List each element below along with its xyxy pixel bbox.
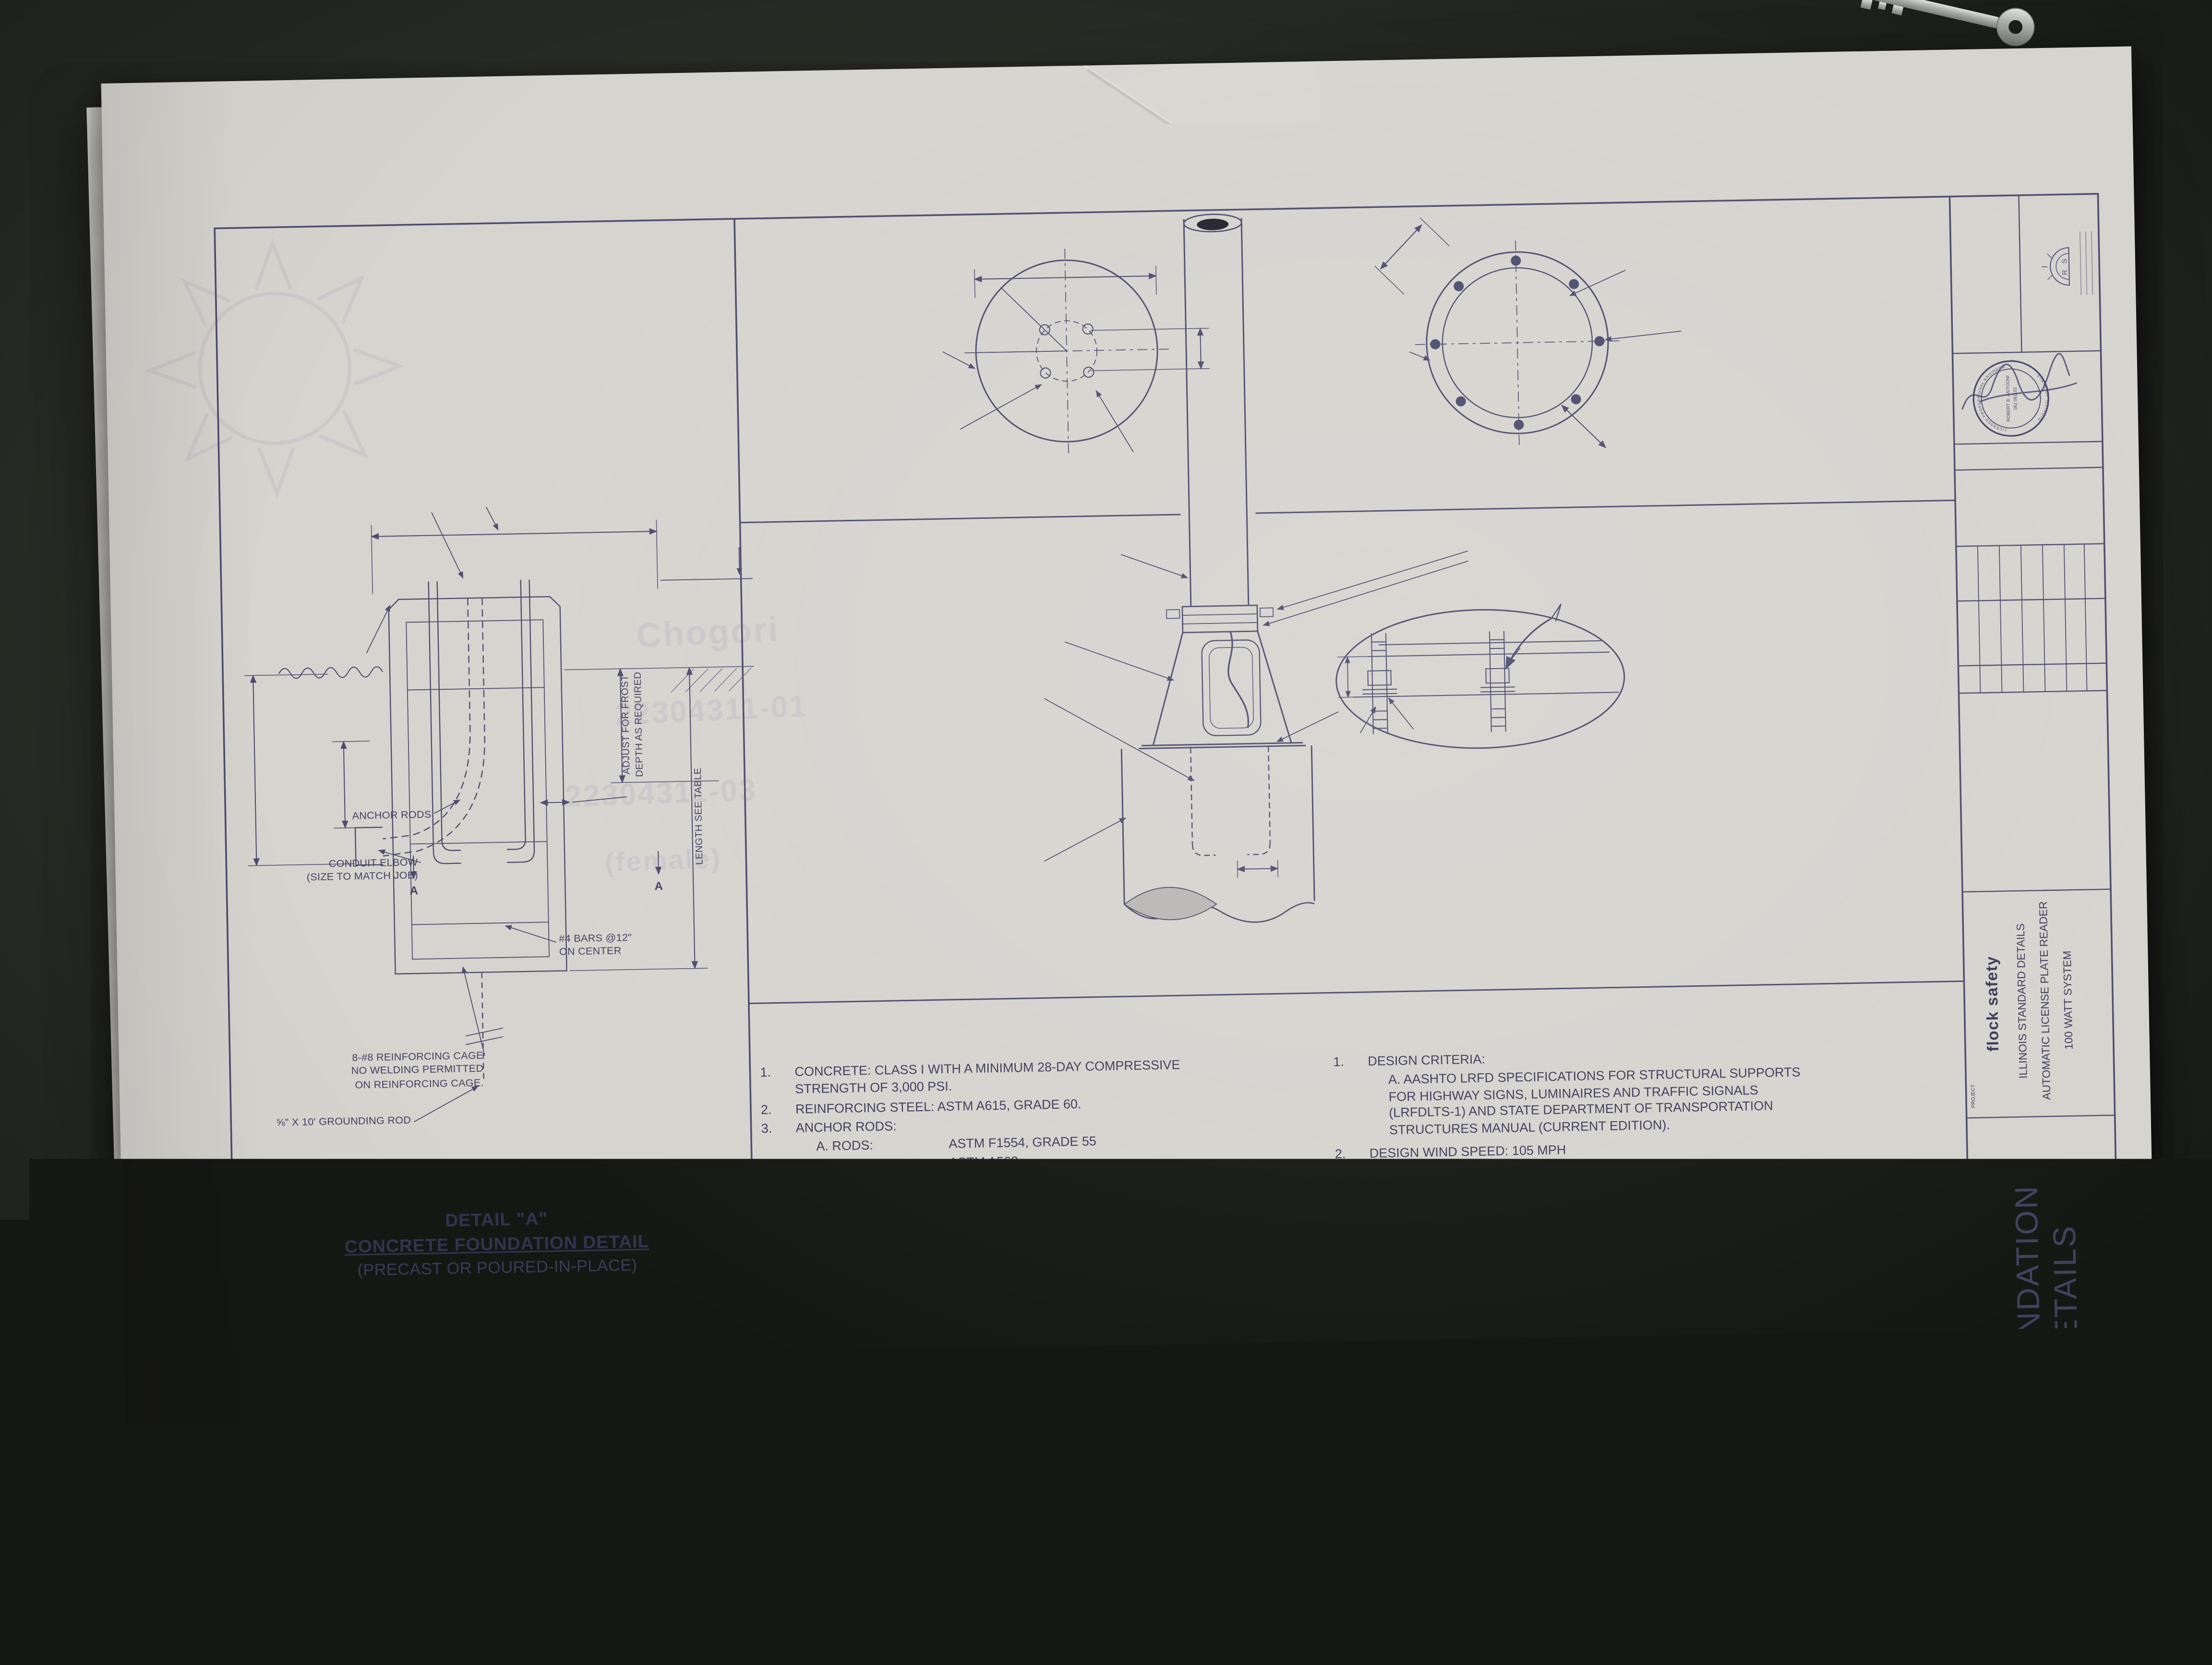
note-val: 62.5 PCF — [1607, 1213, 1662, 1231]
note-num: 6. — [765, 1321, 801, 1388]
reds-logo: REDS — [2029, 227, 2046, 302]
note-text: A. AASHTO LRFD SPECIFICATIONS FOR STRUCT… — [1388, 1065, 1821, 1139]
col-wind-speed: WIND SPEED — [1237, 1330, 1315, 1389]
note-num: 3. — [761, 1121, 796, 1138]
bm-tether-note: * CABLE TETHER (CT) RECOMMENDED FOR ASSE… — [1312, 780, 1615, 814]
label-chamfer: 1" CHAMFER — [281, 646, 363, 661]
rev-header-desc: DESCRIPTION — [1964, 601, 1971, 661]
bm-washer: WASHER — [1294, 729, 1360, 743]
cell-height: 12' — [1315, 1386, 1370, 1445]
label-bars: #4 BARS @12" ON CENTER — [559, 930, 660, 959]
note-val: ASTM A563 — [949, 1154, 1019, 1172]
cell-length: 16.00" — [1778, 1378, 1829, 1436]
sheet-name: FOUNDATION DETAILS — [2007, 1136, 2088, 1454]
label-dim24: 24" — [233, 736, 247, 779]
col-anchor-rods: ANCHOR RODS — [1746, 1318, 1966, 1347]
tv-typ-each-way: TYP. EACH WAY — [1218, 317, 1244, 381]
sec-bars: 8-#8 BARS EQUALLY SPACED — [1684, 315, 1828, 345]
note-val: ASTM F436 — [949, 1173, 1019, 1190]
tv-see-table: SEE TABLE — [1022, 261, 1108, 276]
rev-delta-value: △ — [1980, 671, 2000, 682]
bm-set-screws: (2) ⅜" SET SCREWS OR CABLE TETHER BOLT S… — [1470, 535, 1651, 565]
contact-label: CONTACT: — [1956, 280, 1962, 329]
col-length: LENGTH — [1777, 1346, 1828, 1378]
label-reinforcing-cage: 8-#8 REINFORCING CAGE NO WELDING PERMITT… — [263, 1049, 484, 1093]
sheet-number: 4 — [1991, 1448, 2101, 1474]
cell-wind: 105 MPH — [1238, 1387, 1316, 1446]
col-foundation: FOUNDATION — [1368, 1325, 1571, 1354]
note-num: 2. — [1335, 1146, 1370, 1163]
note-num: 1. — [760, 1065, 795, 1098]
label-frost: ADJUST FOR FROST DEPTH AS REQUIRED — [620, 661, 648, 788]
cell-thread: 6" — [1828, 1375, 1967, 1435]
note-num: 3. — [1335, 1165, 1371, 1232]
bm-pole-label: 12'-4.5" SCHEDULE 40 6061-T6 ALUMINUM PO… — [945, 543, 1118, 573]
note-key: B. INTERNAL ANGLE OF FRICTION: — [1391, 1233, 1608, 1270]
note-num: 2. — [761, 1102, 796, 1119]
cell-depth: * 4'-0" — [1431, 1384, 1482, 1442]
note-text: WHERE FOUNDATION ABUTS THE SIDEWALK, THE… — [799, 1314, 1192, 1387]
note-subitem: A. AASHTO LRFD SPECIFICATIONS FOR STRUCT… — [1388, 1065, 1821, 1139]
cell-pole-type: LPR POLE ASSEMBLY — [1163, 1389, 1238, 1448]
col-depth: DEPTH — [1430, 1352, 1481, 1385]
note-num: 1. — [1333, 1054, 1368, 1071]
rev-header-date: DATE — [1963, 548, 1970, 597]
photo-of-engineering-drawing: Chogori 22304311-01 22304311-03 (female)… — [0, 0, 2212, 1659]
cell-bc: 6" — [1481, 1382, 1573, 1441]
label-diameter: DIAMETER SEE TABLE — [464, 470, 553, 499]
top-view-linework — [941, 246, 1211, 455]
bm-foundation: FOUNDATION SEE TABLE FOR SIZE — [868, 852, 1042, 883]
label-conduit-depth: CONDUIT DEPTH — [260, 721, 276, 842]
col-diameter: DIAMETER — [1368, 1353, 1431, 1386]
bm-alum-base: ALUMINUM BASE MASH CP6 SERIES — [896, 628, 1062, 658]
bm-413: 4.13" — [1332, 657, 1344, 695]
cell-dia: 5/8" — [1747, 1378, 1779, 1437]
label-dim12: 12" — [323, 767, 337, 802]
sheet-name-label: SHEET NAME — [1976, 1381, 1983, 1448]
pole-table: POLE TYPE WIND SPEED POLE HEIGHT FOUNDAT… — [1161, 1317, 1968, 1448]
bm-4in: 4" — [1238, 877, 1278, 890]
note-key: B. NUTS: — [817, 1155, 950, 1174]
section-aa-title: SECTION A-A — [1433, 467, 1621, 493]
sec-tie-bar: #4 TIE BAR @12" CENTERS * (MAX.) — [1628, 254, 1787, 284]
section-marker-a-right: A — [649, 880, 669, 895]
col-reinforcement: FOUNDATION REINFORCEMENT — [1571, 1321, 1747, 1351]
col-horizontal: HORIZONTAL — [1655, 1347, 1747, 1381]
sec-pole: ℄ POLE — [1347, 342, 1414, 357]
bm-anchor-bolts: (4) ANCHOR BOLTS SEE TABLE FOR SIZE — [868, 684, 1042, 714]
tv-pole: ℄ POLE — [881, 340, 947, 355]
project-label: PROJECT — [1970, 1072, 1977, 1121]
label-length: LENGTH SEE TABLE — [693, 750, 709, 882]
note-item: 6.WHERE FOUNDATION ABUTS THE SIDEWALK, T… — [765, 1314, 1192, 1388]
bm-nut: NUT — [1417, 727, 1460, 740]
tv-2typ: 2" — [1183, 336, 1195, 359]
cell-vertical: 8 - NO .8 — [1572, 1381, 1656, 1440]
col-vertical: VERTICAL — [1571, 1349, 1655, 1382]
col-dia: DIA — [1747, 1347, 1778, 1379]
note-val: ASTM F1554, GRADE 55 — [949, 1134, 1096, 1153]
cell-horizontal: NO. 4 @ 12" C-C — [1655, 1379, 1748, 1438]
note-key: A. RODS: — [816, 1137, 949, 1156]
label-bond-wire: #6 AWG BARE BOND WIRE TO BE CLAMPED TO G… — [260, 485, 427, 529]
label-conduit-elbow: CONDUIT ELBOW (SIZE TO MATCH JOB) — [212, 855, 418, 886]
cell-diameter: 1'-6" — [1369, 1385, 1431, 1443]
col-pole-type: POLE TYPE — [1162, 1331, 1238, 1390]
rev-header-delta: DELTA — [1965, 656, 1972, 699]
note-key: C. WASHERS: — [817, 1174, 950, 1193]
col-pole-height: POLE HEIGHT — [1314, 1329, 1369, 1387]
label-anchor-rods: ANCHOR RODS — [289, 808, 431, 824]
section-marker-a-left: A — [404, 884, 424, 899]
foundation-notes-title: FOUNDATION NOTES: — [759, 1015, 963, 1041]
top-view-title: TOP VIEW — [983, 476, 1156, 502]
col-bolt-circle: BOLT CIRCLE (B.C.) — [1480, 1351, 1572, 1384]
brand-logo: flock safety — [1973, 195, 1998, 357]
col-thread: THREAD LENGTH (TOP) — [1827, 1343, 1966, 1378]
date-value: 10-01-21 — [1980, 452, 2075, 463]
drawing-sheet: Chogori 22304311-01 22304311-03 (female)… — [101, 47, 2160, 1646]
bm-cable-tether: CABLE TETHER* (OPTIONAL) — [1496, 618, 1612, 647]
note-val: 32 DEGREES — [1607, 1231, 1689, 1266]
rev-desc-value: 1ST SUBMITTAL — [1985, 594, 1994, 669]
